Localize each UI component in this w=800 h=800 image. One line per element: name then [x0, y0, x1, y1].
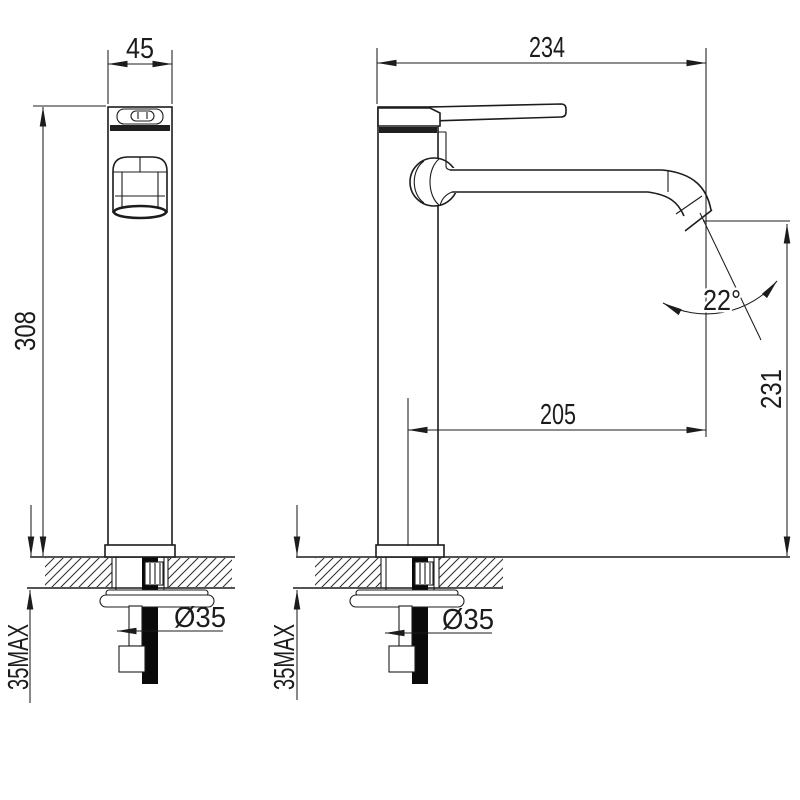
drawing-sheet: 45 308 35MAX Ø35: [0, 0, 800, 800]
mounting-nut-front: [119, 646, 145, 672]
countertop-side: [293, 557, 790, 588]
clamp-stud-side: [399, 606, 412, 646]
dim-length-side-label: 234: [529, 32, 565, 64]
dimension-35max-side: 35MAX: [269, 505, 301, 700]
base-plate-front: [105, 545, 175, 557]
technical-drawing-canvas: 45 308 35MAX Ø35: [0, 0, 800, 800]
handle-side: [378, 104, 566, 133]
dim-outlet-height-label: 231: [756, 369, 788, 409]
clamp-stud-front: [129, 606, 142, 646]
handle-lever: [430, 104, 566, 121]
dimension-231: 231: [756, 224, 788, 556]
base-plate-side: [376, 545, 444, 557]
dimension-35max-front: 35MAX: [3, 505, 35, 703]
dim-height-front-label: 308: [10, 311, 42, 351]
countertop-front: [27, 557, 235, 588]
deck-thickness-side-label: 35MAX: [269, 624, 301, 690]
deck-thickness-front-label: 35MAX: [3, 624, 35, 690]
dimension-45: 45: [108, 33, 172, 104]
dimension-angle-22: 22°: [663, 213, 777, 340]
front-view: 45 308 35MAX Ø35: [3, 33, 235, 703]
outlet-angle-label: 22°: [703, 285, 741, 317]
dimension-234: 234: [377, 32, 706, 104]
mounting-nut-side: [389, 646, 415, 672]
side-view: 234 205 231 22° 35MAX Ø35: [269, 32, 790, 700]
spout-side: [410, 132, 715, 233]
dim-width-front-label: 45: [126, 33, 154, 65]
handle-front: [110, 109, 170, 131]
spout-front: [113, 157, 167, 218]
dim-reach-side-label: 205: [540, 399, 576, 431]
dimension-308: 308: [10, 106, 106, 556]
mount-hole-side-label: Ø35: [442, 604, 494, 636]
dimension-205: 205: [408, 399, 706, 431]
mount-hole-front-label: Ø35: [174, 602, 226, 634]
